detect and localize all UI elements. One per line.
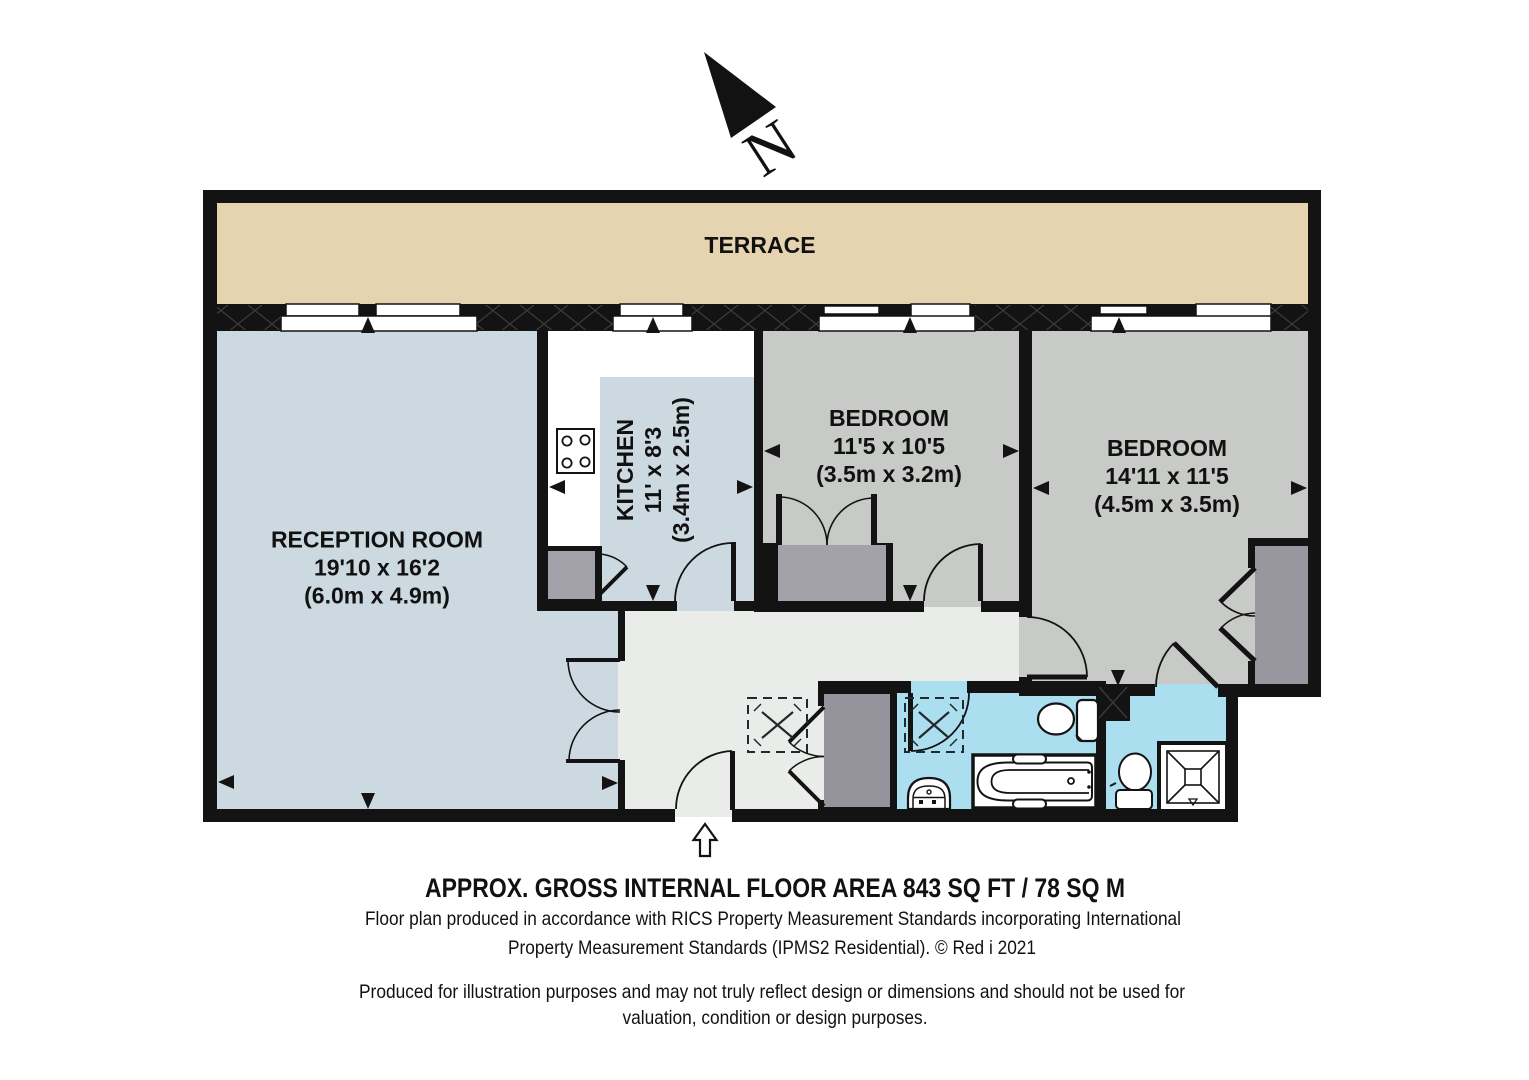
svg-text:11'5 x 10'5: 11'5 x 10'5 bbox=[833, 433, 945, 459]
svg-text:(4.5m x 3.5m): (4.5m x 3.5m) bbox=[1094, 491, 1240, 517]
svg-text:APPROX. GROSS INTERNAL FLOOR A: APPROX. GROSS INTERNAL FLOOR AREA 843 SQ… bbox=[425, 873, 1125, 903]
svg-text:BEDROOM: BEDROOM bbox=[1107, 435, 1227, 461]
svg-text:(3.5m x 3.2m): (3.5m x 3.2m) bbox=[816, 461, 962, 487]
svg-text:19'10 x 16'2: 19'10 x 16'2 bbox=[314, 555, 440, 581]
svg-text:Property Measurement Standards: Property Measurement Standards (IPMS2 Re… bbox=[508, 937, 1036, 959]
svg-text:valuation, condition or design: valuation, condition or design purposes. bbox=[623, 1007, 928, 1029]
svg-text:RECEPTION ROOM: RECEPTION ROOM bbox=[271, 527, 483, 553]
svg-text:Produced for illustration purp: Produced for illustration purposes and m… bbox=[359, 981, 1185, 1003]
svg-text:Floor plan produced in accorda: Floor plan produced in accordance with R… bbox=[365, 908, 1181, 930]
svg-text:(6.0m x 4.9m): (6.0m x 4.9m) bbox=[304, 583, 450, 609]
svg-text:TERRACE: TERRACE bbox=[704, 232, 815, 258]
svg-text:BEDROOM: BEDROOM bbox=[829, 405, 949, 431]
svg-text:14'11 x 11'5: 14'11 x 11'5 bbox=[1105, 463, 1229, 489]
